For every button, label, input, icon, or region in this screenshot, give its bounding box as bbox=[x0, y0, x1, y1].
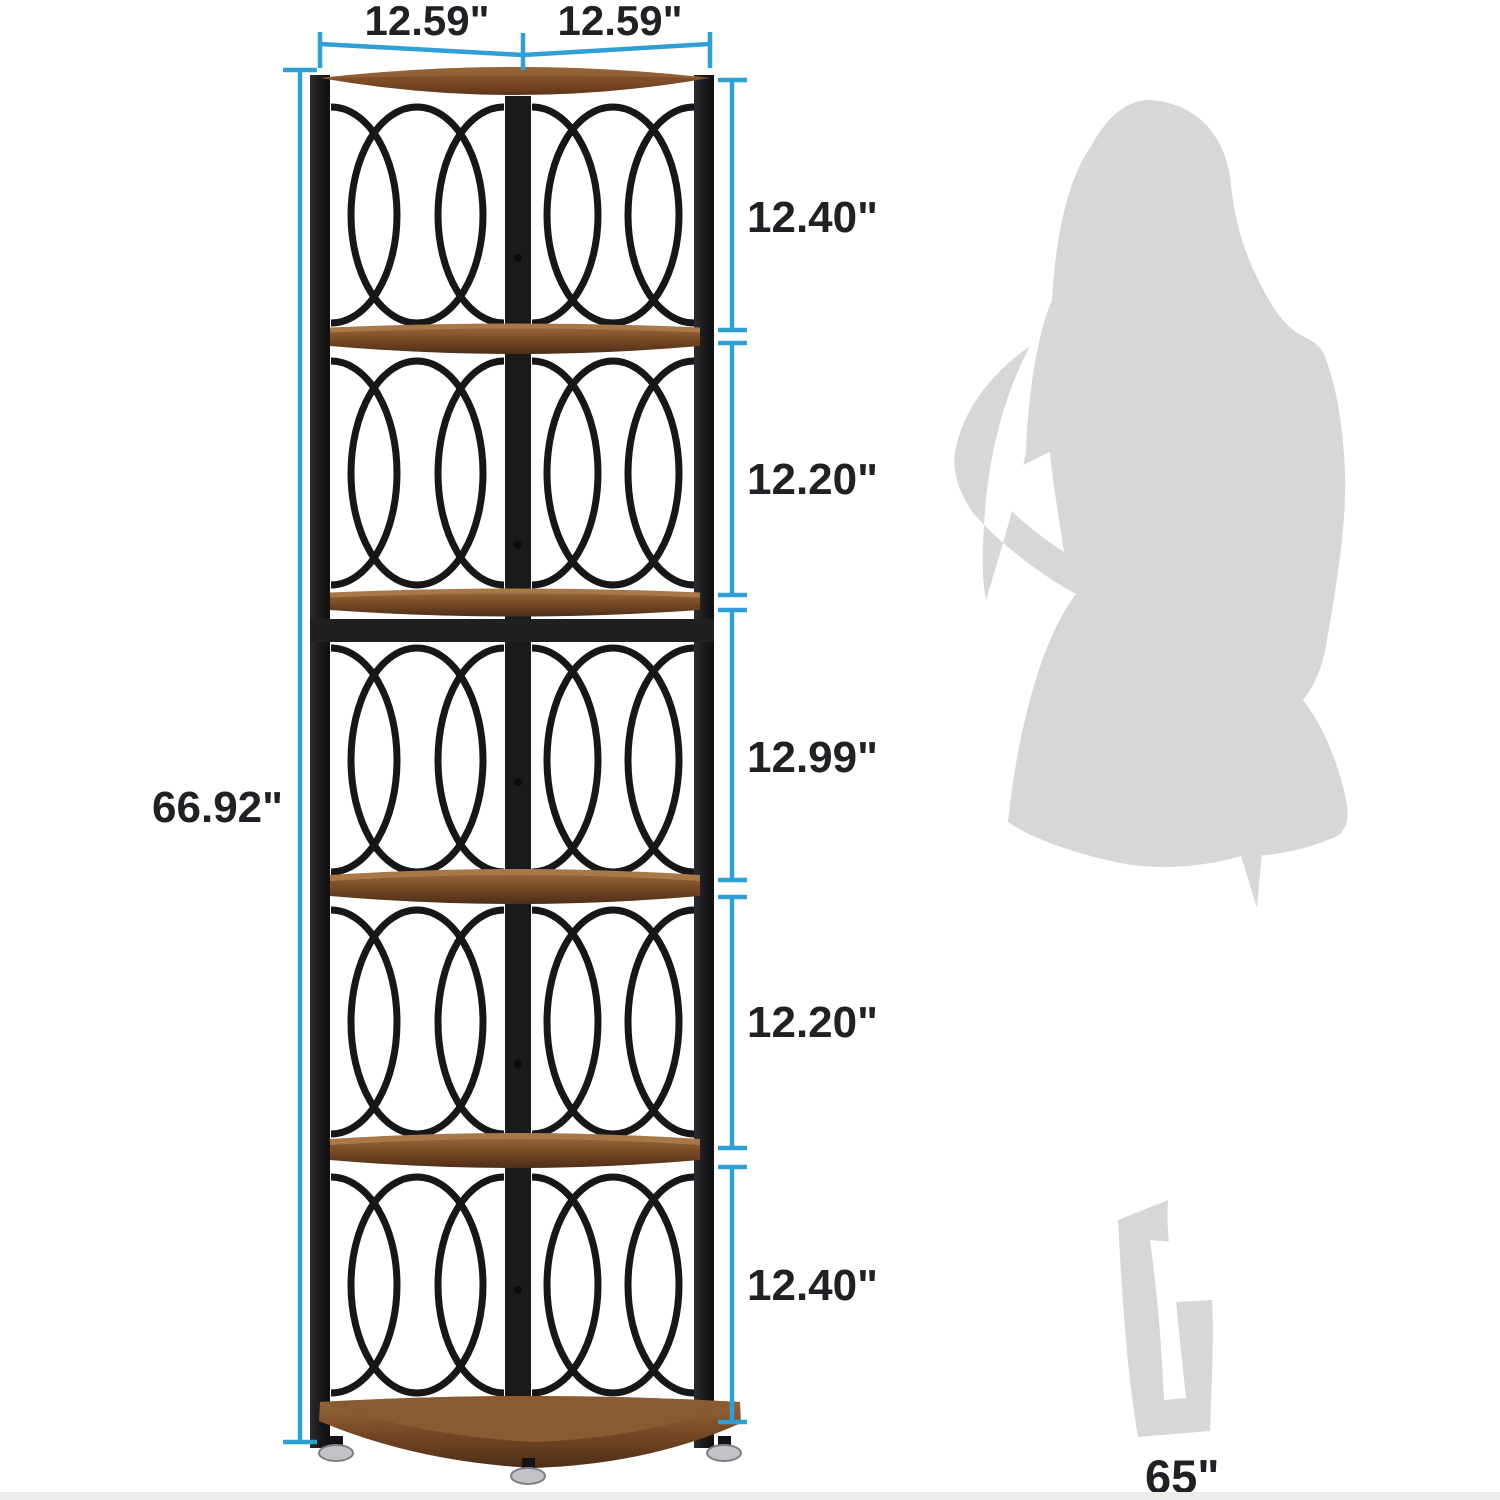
segment-label-1: 12.40" bbox=[747, 196, 878, 240]
total-height-label: 66.92" bbox=[118, 786, 283, 830]
top-width-line bbox=[320, 44, 710, 55]
module-junction-rail bbox=[310, 619, 714, 642]
left-post bbox=[310, 75, 330, 1448]
segment-label-3: 12.99" bbox=[747, 736, 878, 780]
segment-dimension-line bbox=[718, 80, 747, 1422]
corner-post bbox=[505, 96, 531, 1402]
segment-label-2: 12.20" bbox=[747, 458, 878, 502]
product-diagram-stage: 12.59" 12.59" 66.92" 12.40" 12.20" 12.99… bbox=[0, 0, 1500, 1500]
segment-label-5: 12.40" bbox=[747, 1264, 878, 1308]
woman-silhouette bbox=[954, 100, 1347, 1437]
corner-shelf-unit bbox=[265, 67, 760, 1484]
floor-band bbox=[0, 1492, 1500, 1500]
segment-label-4: 12.20" bbox=[747, 1001, 878, 1045]
top-width-right-label: 12.59" bbox=[535, 0, 705, 42]
right-post bbox=[694, 75, 714, 1448]
top-width-left-label: 12.59" bbox=[342, 0, 512, 42]
